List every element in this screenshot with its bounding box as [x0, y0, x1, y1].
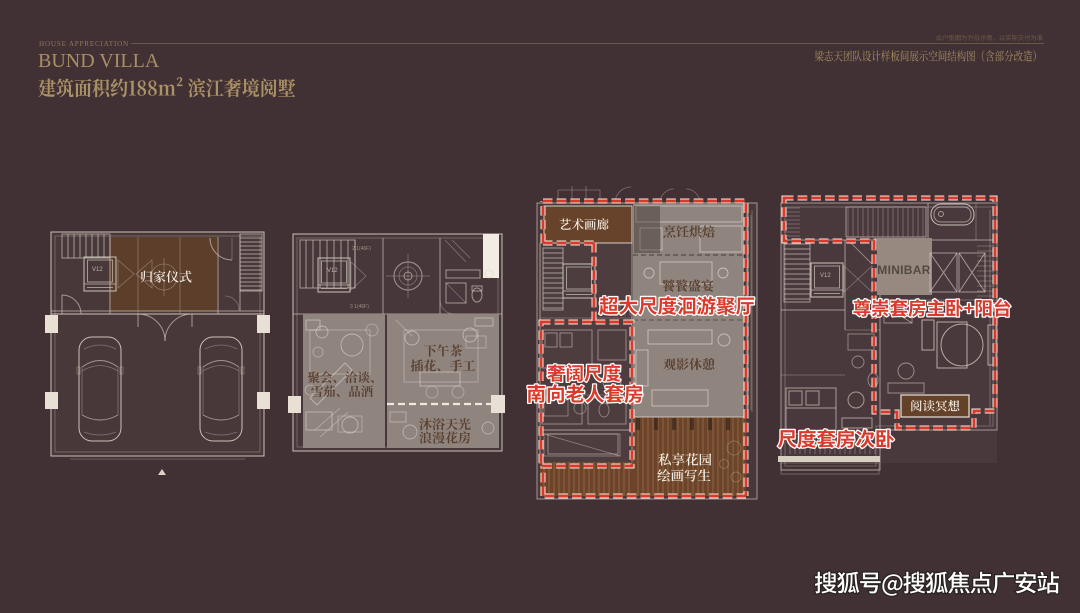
svg-text:MINIBAR: MINIBAR — [877, 263, 930, 277]
svg-text:V12: V12 — [327, 268, 338, 274]
svg-text:V12: V12 — [92, 267, 103, 273]
svg-text:2 1(46F): 2 1(46F) — [352, 246, 371, 252]
svg-text:V12: V12 — [820, 273, 831, 279]
svg-text:BUND VILLA: BUND VILLA — [38, 50, 160, 72]
svg-text:HOUSE APPRECIATION: HOUSE APPRECIATION — [39, 40, 129, 48]
svg-text:3 1(46F): 3 1(46F) — [350, 304, 369, 310]
